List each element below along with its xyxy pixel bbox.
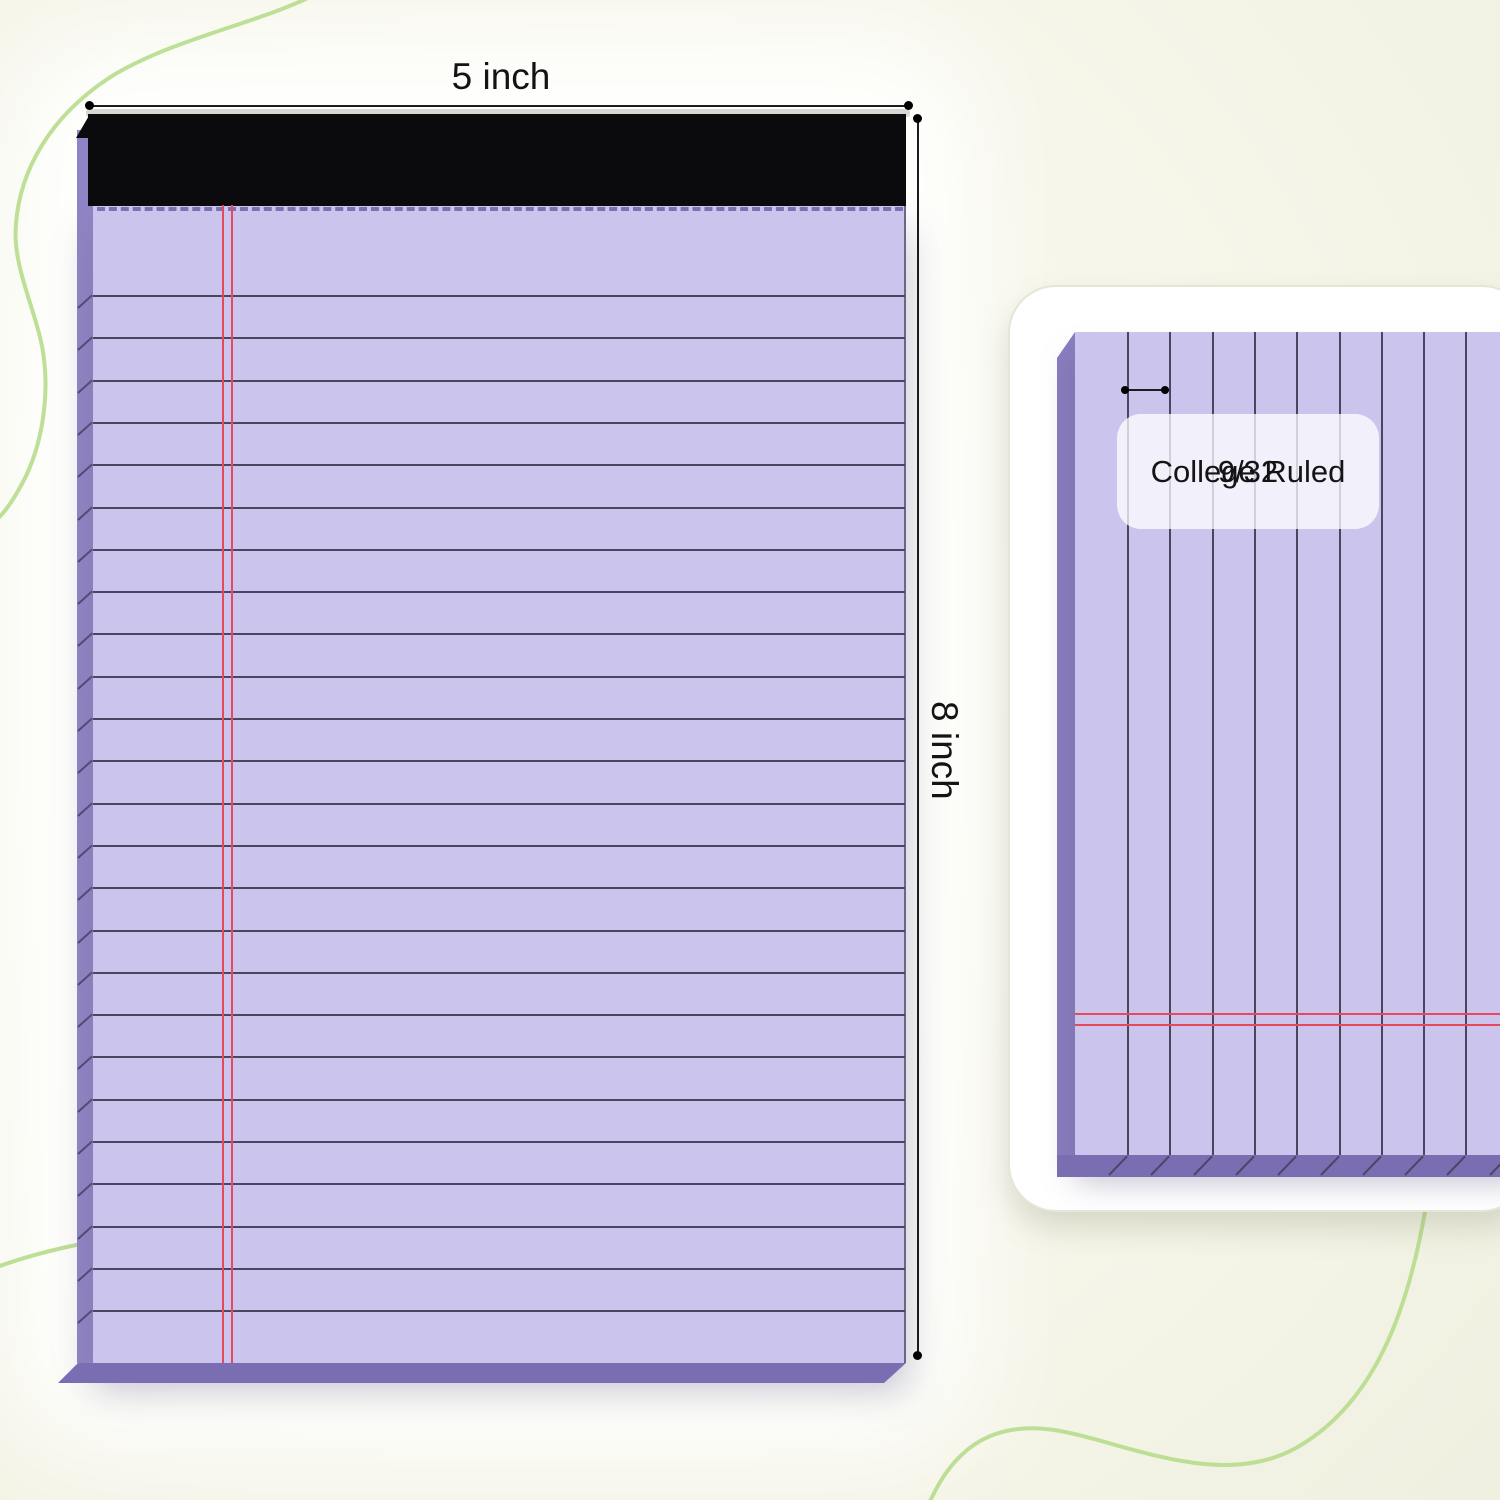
- red-margin-line: [231, 205, 233, 1363]
- detail-card-clip: 9/32 College Ruled: [1010, 287, 1500, 1210]
- ruling-label: 9/32 College Ruled: [1117, 414, 1379, 529]
- product-diagram-stage: 5 inch 8 inch 9/32 College Ruled: [0, 0, 1500, 1500]
- ruling-name-text: College Ruled: [1151, 451, 1346, 493]
- red-margin-line: [222, 205, 224, 1363]
- width-dimension-line: [90, 105, 910, 107]
- detail-spine-hatch: [1151, 1156, 1170, 1176]
- detail-spine-hatch: [1193, 1156, 1212, 1176]
- detail-spine-hatch: [1489, 1156, 1500, 1176]
- width-dimension-endpoint-left: [85, 101, 94, 110]
- ruling-spacing-marker-endpoint-left: [1121, 386, 1129, 394]
- height-dimension-endpoint-top: [913, 114, 922, 123]
- width-dimension-endpoint-right: [904, 101, 913, 110]
- notepad-bottom-spine: [58, 1363, 906, 1383]
- height-dimension-endpoint-bottom: [913, 1351, 922, 1360]
- height-dimension-line: [917, 118, 919, 1356]
- detail-spine-hatch: [1320, 1156, 1339, 1176]
- detail-spine-hatch: [1277, 1156, 1296, 1176]
- detail-spine-hatch: [1447, 1156, 1466, 1176]
- height-dimension-label: 8 inch: [920, 630, 968, 870]
- detail-spine-hatch: [1108, 1156, 1127, 1176]
- detail-spine-hatch: [1404, 1156, 1423, 1176]
- detail-spine-hatch: [1235, 1156, 1254, 1176]
- width-dimension-label: 5 inch: [350, 54, 652, 100]
- ruling-detail-card: 9/32 College Ruled: [1008, 285, 1500, 1212]
- detail-spine-hatch: [1362, 1156, 1381, 1176]
- ruling-spacing-marker-endpoint-right: [1161, 386, 1169, 394]
